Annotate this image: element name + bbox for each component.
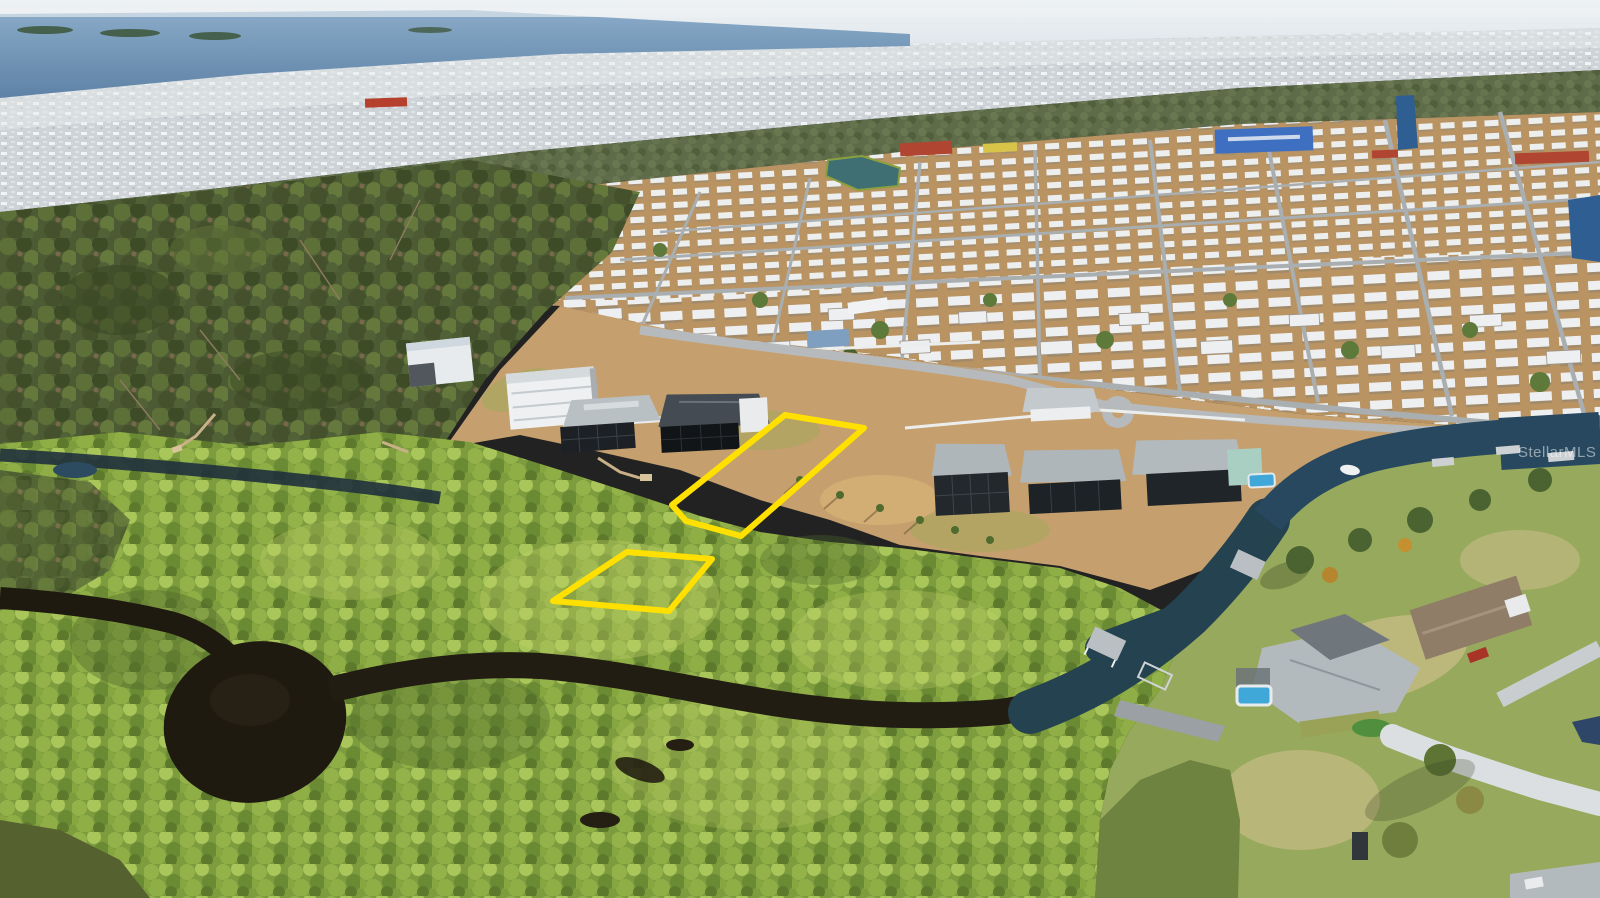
water-spot	[53, 462, 97, 478]
house-canal-2	[1018, 445, 1127, 514]
pool	[1237, 686, 1271, 705]
house-canal-1	[930, 440, 1014, 516]
blue-gray-roof-house	[807, 329, 850, 348]
house-pale	[406, 337, 474, 387]
horizon-haze	[0, 8, 1600, 17]
inlet	[580, 812, 620, 828]
dry-lawn	[1460, 530, 1580, 590]
pool-canal-house	[1248, 473, 1275, 487]
forest-shadow	[60, 265, 180, 335]
river-pool-light	[210, 674, 290, 726]
bay-island	[408, 27, 452, 33]
red-roof-small	[1372, 150, 1398, 159]
forest-light	[170, 225, 270, 275]
dock-platform	[640, 474, 652, 481]
house-white-north	[1021, 384, 1101, 422]
yellow-roof-building	[983, 142, 1017, 153]
boat-trailer	[1352, 832, 1368, 860]
red-roof-building-far	[365, 97, 407, 107]
red-roof-building	[900, 141, 953, 157]
bay-island	[17, 26, 73, 34]
aerial-photo: StellarMLS	[0, 0, 1600, 898]
grass-patch	[910, 508, 1050, 552]
aerial-photo-canvas: StellarMLS	[0, 0, 1600, 898]
inlet	[666, 739, 694, 751]
park-canal-right	[1568, 195, 1600, 262]
mangrove-shade	[760, 535, 880, 585]
mangrove-sunlit	[790, 590, 1010, 690]
bay-island	[100, 29, 160, 37]
forest-shadow	[230, 350, 370, 410]
bay-island	[189, 32, 241, 40]
mls-watermark: StellarMLS	[1518, 444, 1596, 461]
mangrove-sunlit	[260, 520, 440, 600]
